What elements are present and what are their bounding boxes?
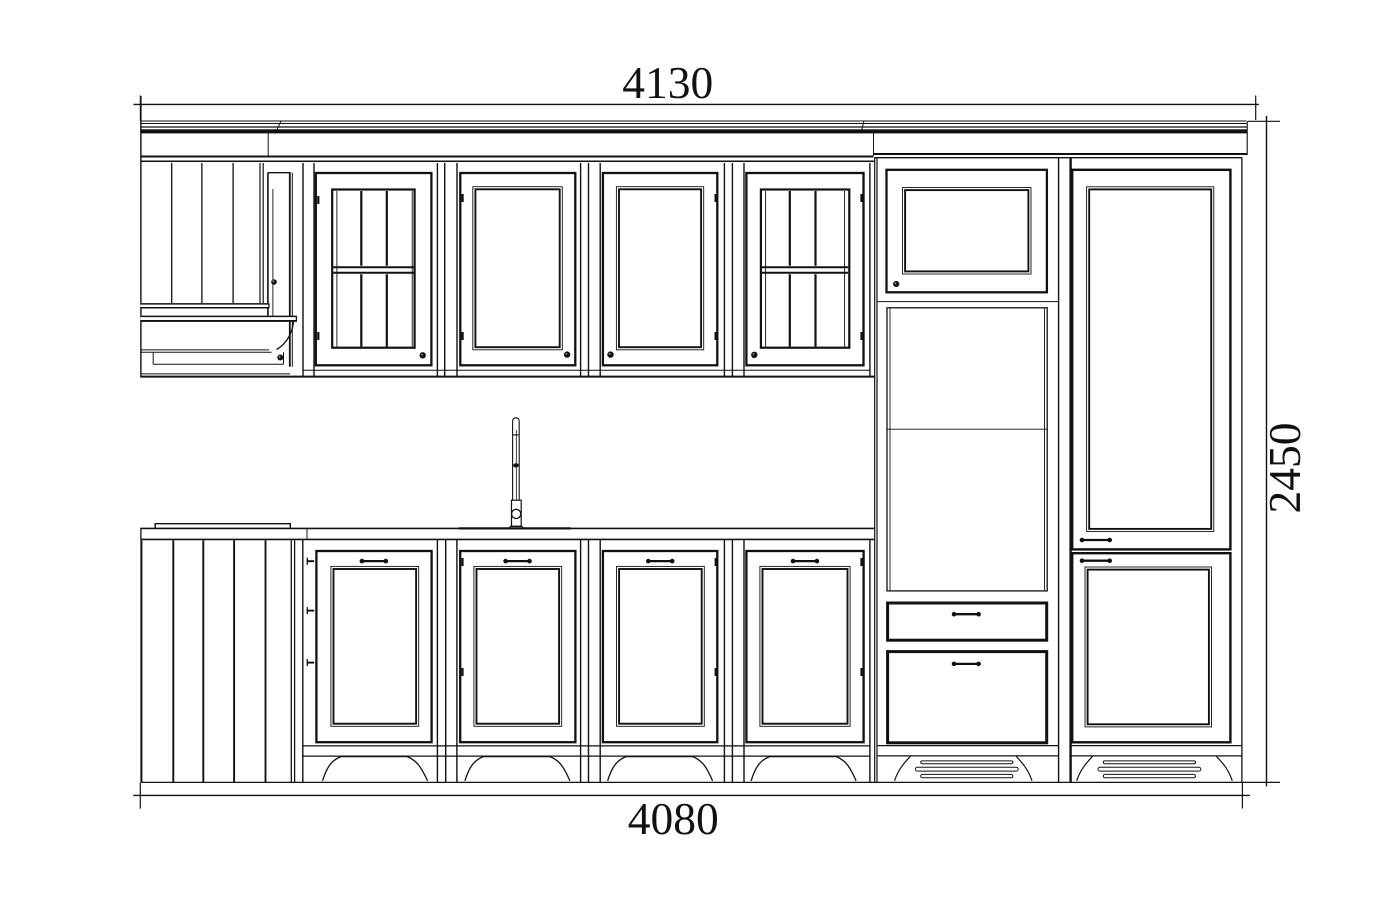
svg-text:4080: 4080 <box>628 793 719 844</box>
svg-text:2450: 2450 <box>1259 423 1310 514</box>
svg-text:4130: 4130 <box>622 57 713 108</box>
